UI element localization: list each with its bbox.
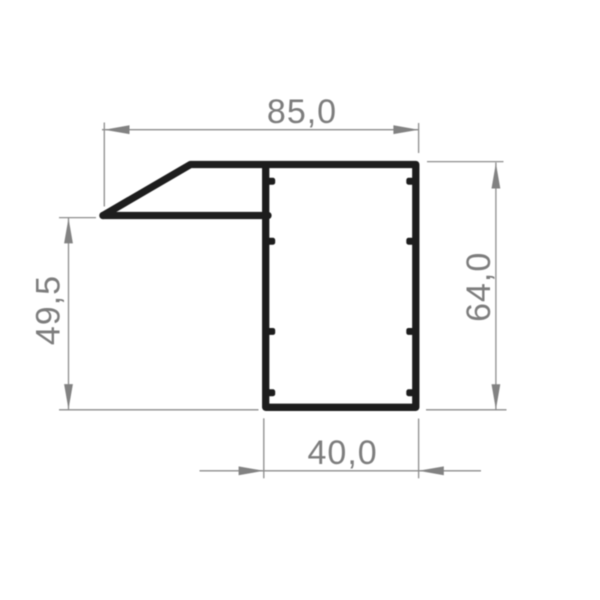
svg-text:40,0: 40,0 xyxy=(308,434,378,472)
svg-text:64,0: 64,0 xyxy=(460,252,498,322)
svg-text:49,5: 49,5 xyxy=(30,275,68,345)
svg-text:85,0: 85,0 xyxy=(267,93,337,131)
